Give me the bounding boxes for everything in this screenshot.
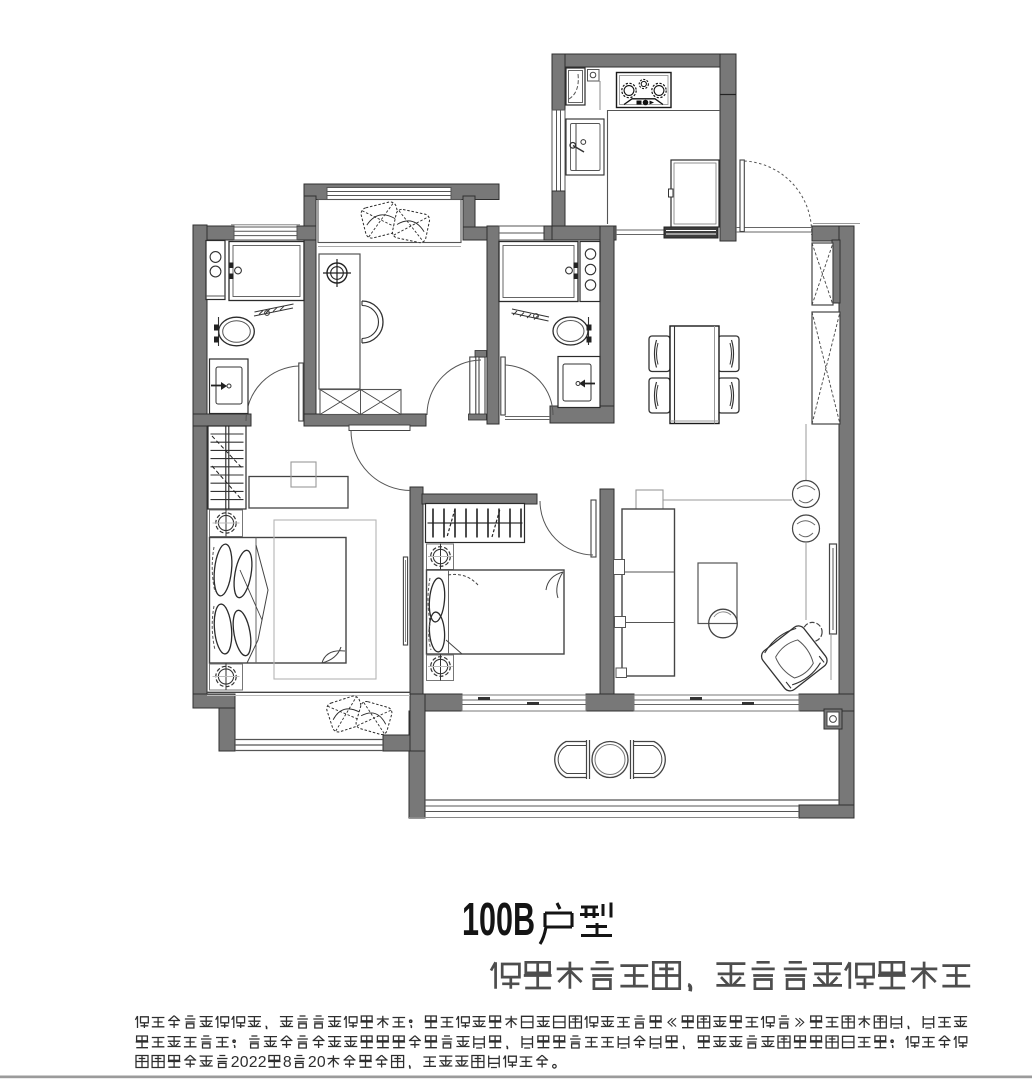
svg-text:2: 2 bbox=[249, 1054, 258, 1071]
svg-text:2: 2 bbox=[231, 1054, 240, 1071]
svg-text:8: 8 bbox=[283, 1054, 292, 1071]
svg-text:100B: 100B bbox=[462, 893, 535, 945]
svg-text:2: 2 bbox=[258, 1054, 267, 1071]
svg-text:0: 0 bbox=[317, 1054, 326, 1071]
svg-text:2: 2 bbox=[308, 1054, 317, 1071]
svg-text:0: 0 bbox=[240, 1054, 249, 1071]
